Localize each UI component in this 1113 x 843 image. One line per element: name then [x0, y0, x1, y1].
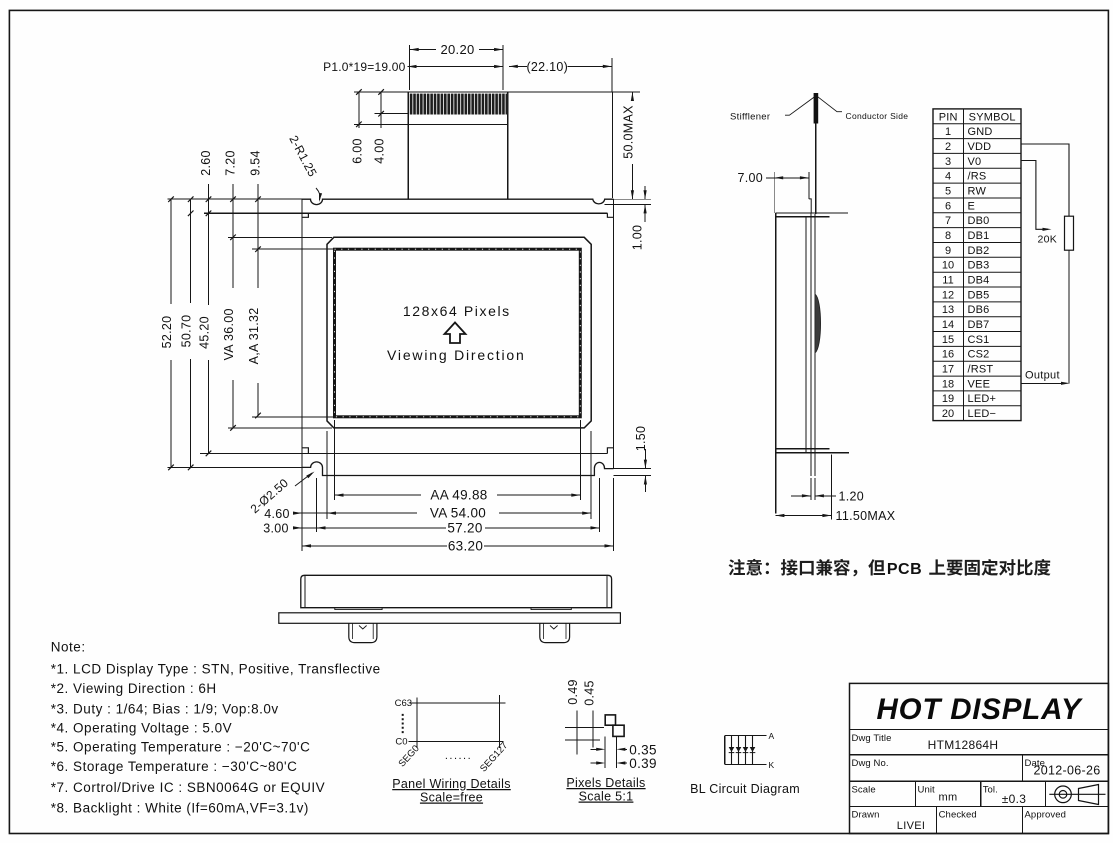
svg-text:4.00: 4.00	[373, 138, 387, 164]
svg-text:VEE: VEE	[968, 378, 991, 390]
svg-text:9: 9	[945, 245, 951, 257]
svg-text:13: 13	[942, 304, 954, 316]
svg-text:1.50: 1.50	[634, 426, 648, 452]
svg-text:45.20: 45.20	[198, 316, 212, 349]
svg-text:GND: GND	[968, 126, 993, 138]
svg-text:6: 6	[945, 200, 951, 212]
svg-text:DB2: DB2	[968, 245, 990, 257]
svg-text:A: A	[769, 731, 775, 741]
svg-text:Scale: Scale	[852, 785, 876, 796]
svg-text:*7. Cortrol/Drive IC : SBN006: *7. Cortrol/Drive IC : SBN0064G or EQUIV	[51, 780, 325, 795]
svg-text:LIVEI: LIVEI	[897, 820, 925, 832]
svg-text:1.20: 1.20	[839, 489, 865, 503]
svg-text:A,A 31.32: A,A 31.32	[247, 307, 261, 364]
svg-text:HOT DISPLAY: HOT DISPLAY	[877, 693, 1083, 726]
svg-text:63.20: 63.20	[448, 538, 483, 553]
svg-text:4: 4	[945, 171, 951, 183]
svg-text:DB1: DB1	[968, 230, 990, 242]
svg-text:Viewing Direction: Viewing Direction	[387, 347, 526, 363]
svg-text:*2. Viewing Direction : 6H: *2. Viewing Direction : 6H	[51, 681, 217, 696]
svg-text:BL Circuit Diagram: BL Circuit Diagram	[690, 782, 800, 796]
svg-text:2: 2	[945, 141, 951, 153]
svg-text:mm: mm	[939, 792, 958, 804]
svg-text:V0: V0	[968, 156, 982, 168]
svg-text:9.54: 9.54	[248, 150, 262, 176]
svg-text:4.60: 4.60	[264, 507, 290, 521]
svg-text:6.00: 6.00	[351, 138, 365, 164]
svg-text:14: 14	[942, 319, 954, 331]
svg-text:20K: 20K	[1038, 234, 1058, 246]
svg-text:DB5: DB5	[968, 289, 990, 301]
svg-text:SYMBOL: SYMBOL	[969, 112, 1016, 124]
svg-text:7: 7	[945, 215, 951, 227]
svg-text:C63: C63	[395, 698, 412, 709]
svg-text:52.20: 52.20	[160, 316, 174, 349]
svg-text:E: E	[968, 200, 976, 212]
svg-text:11: 11	[942, 275, 953, 287]
svg-text:7.20: 7.20	[223, 150, 237, 176]
svg-text:±0.3: ±0.3	[1002, 792, 1026, 806]
svg-text:Output: Output	[1025, 370, 1060, 382]
svg-text:......: ......	[445, 750, 472, 762]
svg-text:*5. Operating Temperature : −: *5. Operating Temperature : −20'C~70'C	[51, 740, 311, 755]
svg-text:19: 19	[942, 393, 954, 405]
svg-text:Stifflener: Stifflener	[730, 112, 770, 123]
svg-text:Drawn: Drawn	[852, 810, 880, 821]
svg-text:*8. Backlight : White (If=60m: *8. Backlight : White (If=60mA,VF=3.1v)	[51, 801, 309, 816]
svg-text:*4. Operating Voltage : 5.0V: *4. Operating Voltage : 5.0V	[51, 721, 232, 736]
svg-text:/RST: /RST	[968, 364, 994, 376]
svg-text:LED−: LED−	[968, 408, 997, 420]
svg-text:CS1: CS1	[968, 334, 990, 346]
svg-text:50.70: 50.70	[180, 315, 194, 348]
svg-text:RW: RW	[968, 185, 987, 197]
svg-text:DB6: DB6	[968, 304, 990, 316]
svg-text:CS2: CS2	[968, 349, 990, 361]
svg-text:*1. LCD Display Type : STN, P: *1. LCD Display Type : STN, Positive, Tr…	[51, 661, 381, 676]
svg-text:18: 18	[942, 378, 954, 390]
svg-text:Checked: Checked	[939, 810, 977, 821]
svg-text:128x64 Pixels: 128x64 Pixels	[403, 303, 511, 319]
svg-text:1: 1	[945, 126, 951, 138]
svg-text:3: 3	[945, 156, 951, 168]
svg-text:*3. Duty : 1/64; Bias : 1/9;: *3. Duty : 1/64; Bias : 1/9; Vop:8.0v	[51, 702, 279, 717]
svg-text:Tol.: Tol.	[983, 785, 998, 796]
svg-text:PCB: PCB	[887, 561, 922, 578]
svg-text:0.39: 0.39	[629, 756, 656, 771]
svg-text:P1.0*19=19.00: P1.0*19=19.00	[323, 60, 405, 74]
svg-text:57.20: 57.20	[447, 520, 482, 535]
svg-text:7.00: 7.00	[737, 171, 763, 185]
svg-text:8: 8	[945, 230, 951, 242]
svg-text:16: 16	[942, 349, 954, 361]
svg-text:DB4: DB4	[968, 275, 990, 287]
svg-text:C0: C0	[395, 737, 407, 748]
svg-text:20: 20	[942, 408, 954, 420]
svg-text:11.50MAX: 11.50MAX	[836, 509, 896, 523]
svg-text:VA 36.00: VA 36.00	[222, 308, 236, 360]
svg-text:0.45: 0.45	[583, 680, 597, 706]
svg-text:0.49: 0.49	[566, 679, 580, 705]
svg-text:Dwg No.: Dwg No.	[852, 758, 889, 769]
svg-text:/RS: /RS	[968, 171, 987, 183]
svg-text:1.00: 1.00	[631, 225, 645, 251]
svg-text:LED+: LED+	[968, 393, 997, 405]
svg-text:(22.10): (22.10)	[526, 60, 568, 74]
svg-text:Scale=free: Scale=free	[420, 791, 483, 805]
svg-text:DB0: DB0	[968, 215, 990, 227]
svg-text:*6. Storage Temperature : −30: *6. Storage Temperature : −30'C~80'C	[51, 759, 298, 774]
svg-text:2.60: 2.60	[199, 150, 213, 176]
svg-text:AA 49.88: AA 49.88	[430, 488, 487, 503]
svg-text:Conductor Side: Conductor Side	[846, 111, 909, 121]
svg-text:50.0MAX: 50.0MAX	[621, 105, 635, 159]
svg-text:12: 12	[942, 289, 954, 301]
svg-text:5: 5	[945, 185, 951, 197]
svg-text:DB7: DB7	[968, 319, 990, 331]
svg-text:Panel Wiring Details: Panel Wiring Details	[392, 777, 511, 791]
svg-text:15: 15	[942, 334, 954, 346]
svg-text:2012-06-26: 2012-06-26	[1034, 764, 1101, 778]
svg-text:10: 10	[942, 260, 954, 272]
svg-text:Scale 5:1: Scale 5:1	[579, 790, 634, 804]
svg-text:Dwg Title: Dwg Title	[852, 733, 892, 744]
svg-text:Note:: Note:	[51, 640, 86, 655]
svg-text:20.20: 20.20	[440, 42, 474, 57]
svg-text:Pixels Details: Pixels Details	[566, 776, 645, 790]
svg-text:HTM12864H: HTM12864H	[928, 738, 999, 752]
svg-text:K: K	[769, 760, 775, 770]
svg-text:Unit: Unit	[918, 785, 936, 796]
svg-text:VA 54.00: VA 54.00	[430, 506, 486, 521]
svg-text:PIN: PIN	[939, 112, 958, 124]
svg-text:VDD: VDD	[968, 141, 992, 153]
svg-text:17: 17	[942, 364, 954, 376]
svg-text:DB3: DB3	[968, 260, 990, 272]
svg-text:Approved: Approved	[1025, 810, 1066, 821]
svg-text:3.00: 3.00	[263, 522, 289, 536]
